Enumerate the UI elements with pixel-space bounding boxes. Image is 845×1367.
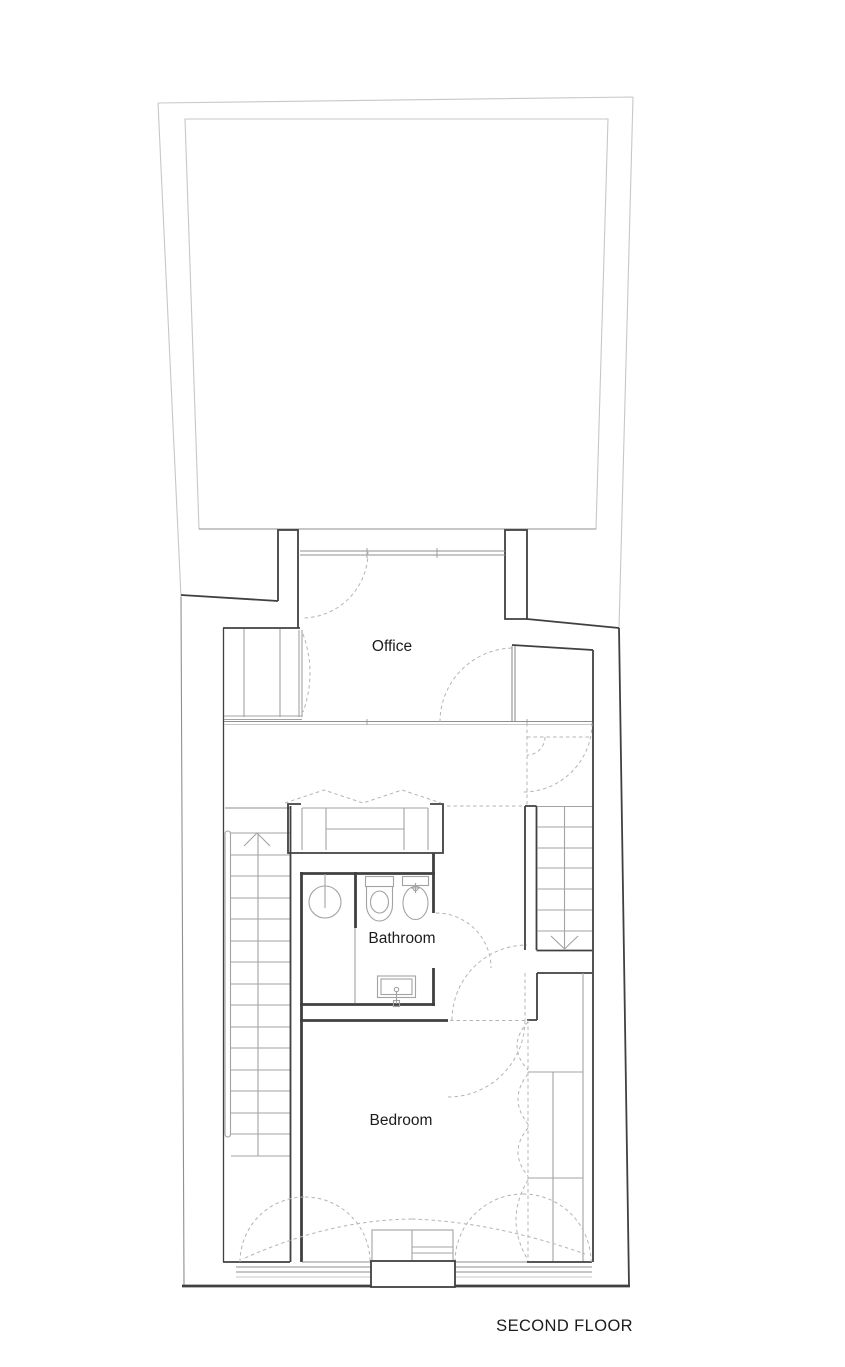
office-door-swings — [302, 552, 513, 722]
bedroom-label: Bedroom — [370, 1112, 433, 1129]
office-closet — [223, 628, 302, 720]
left-staircase — [223, 806, 291, 1262]
office-glass-panel — [512, 646, 515, 722]
right-staircase — [525, 806, 592, 951]
bidet-fixture — [403, 877, 429, 920]
toilet-fixture — [366, 877, 394, 922]
hall-closet-dashed — [447, 723, 592, 806]
window-cabinet — [372, 1230, 453, 1261]
curtain-dashes — [240, 1194, 591, 1262]
office-label: Office — [372, 638, 412, 655]
office-window — [300, 548, 505, 558]
stairs-up-arrow — [244, 833, 270, 846]
bedroom-closets — [516, 973, 592, 1262]
washbasin-fixture — [378, 976, 416, 1007]
bedroom — [236, 973, 592, 1287]
wardrobe — [285, 790, 443, 853]
entry-door-piers — [278, 530, 527, 628]
bay-window-box — [371, 1261, 455, 1287]
terrace — [158, 97, 633, 628]
bathroom — [300, 853, 435, 1262]
shower-fixture — [309, 874, 355, 1003]
wardrobe-folding-doors — [285, 790, 441, 803]
floor-plan: Office Bathroom Bedroom SECOND FLOOR — [0, 0, 845, 1367]
floor-title: SECOND FLOOR — [496, 1317, 633, 1335]
bedroom-door-swing — [448, 1020, 525, 1097]
bathroom-label: Bathroom — [368, 930, 435, 947]
floor-plan-drawing: Office Bathroom Bedroom SECOND FLOOR — [0, 0, 845, 1367]
hall-door-swings — [436, 913, 527, 1020]
